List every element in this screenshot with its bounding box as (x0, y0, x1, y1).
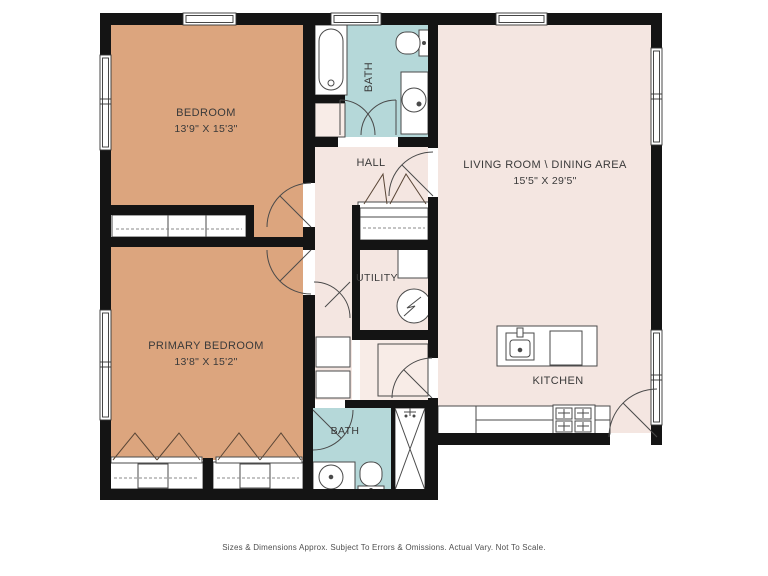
living-dining-area (438, 25, 651, 433)
corridor-closet (316, 371, 350, 398)
sink-icon (401, 72, 428, 134)
hall-label: HALL (331, 155, 411, 171)
bedroom-notch (248, 205, 303, 237)
window (496, 13, 547, 25)
primary-bedroom-name: PRIMARY BEDROOM (106, 338, 306, 354)
disclaimer-caption: Sizes & Dimensions Approx. Subject To Er… (0, 543, 768, 552)
primary-bedroom-label: PRIMARY BEDROOM 13'8" X 15'2" (106, 338, 306, 370)
window (331, 13, 381, 25)
living-dining-label: LIVING ROOM \ DINING AREA 15'5" X 29'5" (438, 157, 652, 189)
kitchen-island (497, 326, 597, 366)
floor-plan-drawing (0, 0, 768, 576)
bedroom-name: BEDROOM (106, 105, 306, 121)
hall-closet (360, 207, 428, 240)
bathtub-icon (315, 25, 347, 137)
washer-icon (397, 289, 431, 323)
closet-drawer (138, 464, 168, 488)
primary-bedroom-dims: 13'8" X 15'2" (106, 354, 306, 370)
closet-drawer (240, 464, 270, 488)
bedroom-dims: 13'9" X 15'3" (106, 121, 306, 137)
closet-drawer (168, 215, 206, 237)
closet-track (358, 202, 430, 208)
toilet-icon (358, 462, 384, 493)
range-icon (553, 405, 595, 435)
toilet-icon (396, 30, 429, 56)
refrigerator-icon (438, 406, 476, 434)
kitchen-label: KITCHEN (498, 373, 618, 389)
living-dining-dims: 15'5" X 29'5" (438, 173, 652, 189)
kitchen-counter (438, 405, 610, 435)
island-sink-icon (506, 328, 534, 360)
floor-plan: BEDROOM 13'9" X 15'3" PRIMARY BEDROOM 13… (0, 0, 768, 576)
corridor-closet (316, 337, 350, 367)
utility-label: UTILITY (347, 270, 407, 286)
window (651, 330, 662, 425)
living-dining-name: LIVING ROOM \ DINING AREA (438, 157, 652, 173)
shower-icon (395, 408, 425, 490)
window (651, 48, 662, 145)
cooktop-icon (550, 331, 582, 365)
window (183, 13, 236, 25)
lower-bath-label: BATH (313, 423, 377, 439)
bedroom-label: BEDROOM 13'9" X 15'3" (106, 105, 306, 137)
upper-bath-label: BATH (361, 47, 375, 107)
